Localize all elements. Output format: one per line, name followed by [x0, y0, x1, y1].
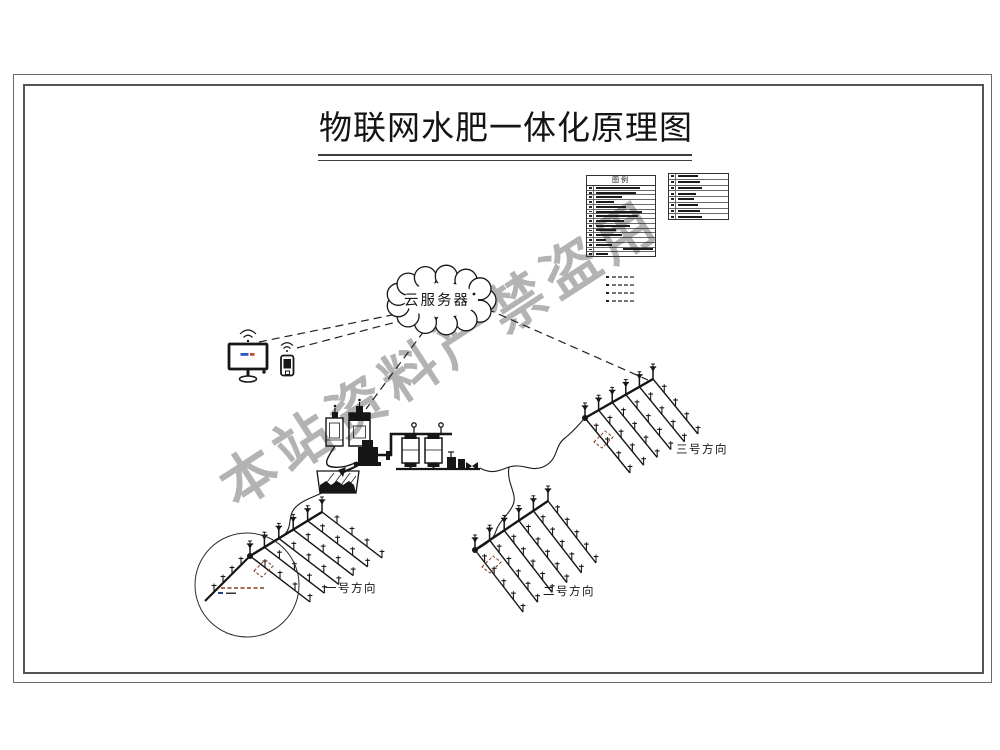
detail-annotation-text — [226, 593, 236, 595]
fertigation-equipment — [317, 399, 480, 493]
legend-line-styles — [606, 276, 636, 302]
line-style-label — [606, 300, 609, 302]
phone-screen — [284, 359, 292, 369]
cloud-dot — [473, 293, 476, 296]
field-label: 二号方向 — [543, 584, 595, 598]
field-start-marker — [254, 560, 273, 577]
link-phone-cloud — [297, 321, 400, 348]
drawing-sheet: 物联网水肥一体化原理图 本站资料严禁盗用 图例 一号方向二号方向三号方向 — [0, 0, 1000, 750]
monitor-base — [240, 376, 257, 382]
water-basin — [317, 471, 359, 493]
link-cloud-controller — [366, 331, 424, 409]
monitor-terminal — [229, 330, 267, 382]
supply-pipes — [255, 418, 585, 553]
detail-annotation-mark — [218, 592, 223, 594]
monitor-screen — [229, 344, 267, 369]
pipe-to-field3 — [480, 418, 585, 472]
phone-button — [286, 371, 290, 375]
diagram-canvas: 一号方向二号方向三号方向 — [0, 0, 1000, 750]
irrigation-field-2: 二号方向 — [472, 486, 599, 612]
detail-circle — [195, 533, 299, 637]
wifi-icon — [281, 343, 293, 352]
screen-dash-red — [250, 353, 255, 356]
field-label: 三号方向 — [676, 442, 728, 456]
irrigation-field-1: 一号方向 — [205, 497, 384, 602]
wifi-icon — [240, 330, 256, 342]
line-style-label — [606, 276, 609, 278]
detail-callout — [195, 533, 299, 637]
phone-terminal — [281, 343, 294, 376]
filter-units — [402, 433, 442, 467]
line-style-label — [606, 292, 609, 294]
link-monitor-cloud — [259, 314, 397, 342]
fertilizer-tank-2 — [349, 399, 370, 446]
dosing-hose — [327, 446, 357, 467]
screen-dash-blue — [241, 353, 249, 356]
cloud-label: 云服务器 — [404, 292, 470, 309]
line-style-label — [606, 284, 609, 286]
cloud-server: 云服务器 — [387, 265, 496, 335]
monitor-stand — [247, 369, 250, 376]
fertilizer-tank-1 — [326, 405, 343, 446]
link-cloud-field3 — [487, 309, 648, 380]
monitor-dot — [262, 370, 265, 373]
irrigation-field-3: 三号方向 — [582, 364, 728, 473]
control-valves — [447, 452, 478, 470]
field-label: 一号方向 — [325, 581, 377, 595]
irrigation-fields: 一号方向二号方向三号方向 — [205, 364, 728, 612]
